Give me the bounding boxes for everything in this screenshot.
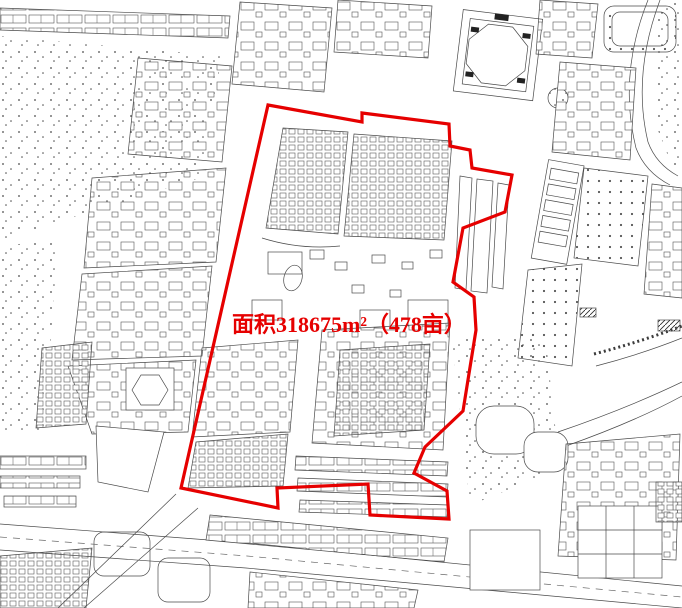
map-block [4, 496, 76, 507]
map-block [470, 530, 540, 590]
map-block [0, 8, 230, 38]
map-block [128, 58, 232, 162]
dense-cluster [334, 344, 430, 436]
strip-building [471, 179, 493, 293]
map-block [0, 476, 80, 488]
map-block [72, 266, 212, 360]
map-block [536, 0, 598, 58]
hatched-building [580, 308, 596, 317]
map-block [248, 572, 418, 608]
map-block [644, 184, 682, 298]
map-block [232, 2, 332, 92]
map-block [36, 342, 92, 428]
hut-cluster [266, 128, 348, 234]
octagon-plaza [453, 10, 542, 101]
map-block [94, 532, 150, 576]
map-block [656, 482, 682, 522]
cadastral-map: 面积318675m²（478亩） [0, 0, 682, 608]
cadastral-map-screenshot: 面积318675m²（478亩） [0, 0, 682, 608]
park-kidney [524, 432, 568, 472]
row-building [295, 456, 448, 476]
map-block [192, 340, 298, 437]
orchard-grid [574, 168, 648, 266]
hut-cluster [344, 134, 452, 240]
oval-feature [281, 263, 305, 293]
map-block [188, 434, 288, 488]
stipple-field [652, 0, 682, 170]
map-block [0, 548, 92, 608]
map-block [0, 456, 86, 469]
map-block [552, 62, 636, 160]
map-block [84, 168, 226, 268]
map-block [334, 0, 432, 58]
map-block [206, 515, 448, 562]
curved-road [558, 382, 682, 432]
park-block [96, 426, 164, 492]
area-label: 面积318675m²（478亩） [232, 312, 466, 337]
path-curve [262, 238, 340, 247]
map-background [0, 0, 682, 608]
large-building [578, 506, 662, 578]
